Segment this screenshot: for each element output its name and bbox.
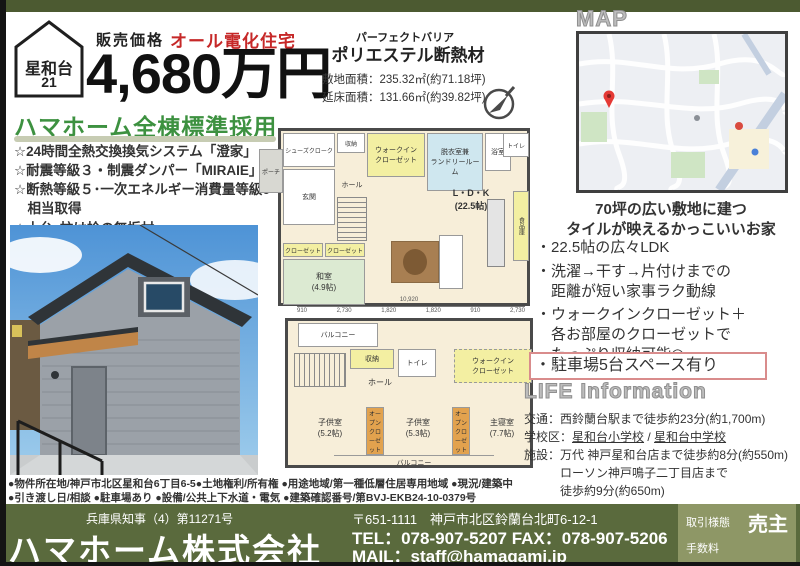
stairs-1f — [337, 197, 367, 241]
company-name: ハマホーム株式会社 — [8, 524, 322, 566]
school-elementary: 星和台小学校 — [572, 430, 644, 444]
life-facility-1: 施設：万代 神戸星和台店まで徒歩約8分(約550m) — [524, 446, 796, 464]
dim-segments: 910 2,730 1,820 1,820 910 2,730 — [297, 308, 525, 314]
dim-seg: 1,820 — [426, 308, 441, 314]
dim-seg: 910 — [297, 308, 307, 314]
footer-band: 兵庫県知事（4）第11271号 ハマホーム株式会社 〒651-1111 神戸市北… — [0, 504, 800, 562]
life-heading: LIFE Information — [524, 380, 707, 404]
dim-seg: 910 — [470, 308, 480, 314]
school-junior: 星和台中学校 — [654, 430, 726, 444]
life-facility-3: 徒歩約9分(約650m) — [524, 482, 796, 500]
highlight-text: ・駐車場5台スペース有り — [535, 355, 718, 376]
room-balcony-bottom: バルコニー — [334, 455, 494, 469]
room-open-closet2: オープン クローゼット — [452, 407, 470, 455]
map-image — [576, 31, 788, 193]
table — [403, 249, 427, 275]
insulation-name: ポリエステル断熱材 — [308, 41, 508, 66]
room-master: 主寝室 (7.7帖) — [472, 397, 532, 459]
floorplan-2f-outline: バルコニー 収納 トイレ ホール ウォークイン クローゼット 子供室 (5.2帖… — [285, 318, 533, 468]
life-schools: 学校区：星和台小学校 / 星和台中学校 — [524, 428, 796, 446]
room-hall-1f: ホール — [337, 175, 367, 195]
left-black-edge — [0, 0, 6, 566]
house-photo — [10, 225, 258, 475]
map-heading: MAP — [576, 6, 628, 32]
dim-total: 10,920 — [283, 297, 535, 303]
top-green-bar — [0, 0, 800, 12]
fineprint-line-1: ●物件所在地/神戸市北区星和台6丁目6-5●土地権利/所有権 ●用途地域/第一種… — [8, 477, 513, 491]
stairs-2f — [294, 353, 346, 387]
floorplan-1f: ポーチ シューズクローク 収納 ウォークイン クローゼット 脱衣室兼 ランドリー… — [278, 128, 530, 306]
kitchen-counter — [487, 199, 505, 267]
dim-seg: 2,730 — [337, 308, 352, 314]
room-closet-a: クローゼット — [283, 243, 323, 257]
dim-line-total — [297, 306, 525, 307]
flyer-page: 星和台 21 販売価格 オール電化住宅 4,680万円 パーフェクトバリア ポリ… — [0, 0, 800, 566]
property-caption: 70坪の広い敷地に建つ タイルが映えるかっこいいお家 — [545, 200, 797, 241]
room-closet-b: クローゼット — [325, 243, 365, 257]
room-porch: ポーチ — [259, 149, 283, 193]
room-kids1: 子供室 (5.2帖) — [296, 397, 364, 459]
standard-items: ☆24時間全熱交換換気システム「澄家」 ☆耐震等級３・制震ダンパー「MIRAIE… — [14, 142, 284, 238]
room-balcony-top: バルコニー — [298, 323, 378, 347]
room-wic: ウォークイン クローゼット — [367, 133, 425, 177]
estate-badge: 星和台 21 — [13, 19, 85, 99]
floorplan-2f: 10,920 910 2,730 1,820 1,820 910 2,730 バ… — [283, 296, 535, 476]
dim-seg: 1,820 — [381, 308, 396, 314]
floor-area: 延床面積：131.66㎡(約39.82坪) — [322, 90, 486, 108]
highlight-box: ・駐車場5台スペース有り — [529, 352, 767, 380]
sofa — [439, 235, 463, 289]
standard-item: ☆24時間全熱交換換気システム「澄家」 — [14, 142, 284, 161]
compass-icon — [480, 83, 520, 128]
deal-box: 取引様態 売主 手数料 — [678, 504, 796, 562]
room-toilet-1f: トイレ — [503, 133, 529, 157]
price-value: 4,680万円 — [86, 46, 331, 102]
deal-type-label: 取引様態 — [686, 514, 730, 530]
fee-label: 手数料 — [686, 540, 719, 556]
area-info: 敷地面積：235.32㎡(約71.18坪) 延床面積：131.66㎡(約39.8… — [322, 72, 486, 108]
fineprint: ●物件所在地/神戸市北区星和台6丁目6-5●土地権利/所有権 ●用途地域/第一種… — [8, 477, 513, 505]
standard-item: 相当取得 — [14, 199, 284, 218]
life-facility-2: ローソン神戸鳴子二丁目店まで — [524, 464, 796, 482]
dim-seg: 2,730 — [510, 308, 525, 314]
room-hall-2f: ホール — [350, 373, 410, 391]
site-area: 敷地面積：235.32㎡(約71.18坪) — [322, 72, 486, 90]
feature-bullet-1: ・22.5帖の広々LDK — [536, 238, 796, 258]
bottom-black-edge — [0, 562, 800, 566]
room-pantry: 食品庫 — [513, 191, 529, 261]
room-entrance: 玄関 — [283, 169, 335, 225]
standard-item: ☆断熱等級５･一次エネルギー消費量等級6 — [14, 180, 284, 199]
room-shoes-closet: シューズクローク — [283, 133, 335, 167]
life-transport: 交通：西鈴蘭台駅まで徒歩約23分(約1,700m) — [524, 410, 796, 428]
room-wic-2f: ウォークイン クローゼット — [454, 349, 532, 383]
room-open-closet1: オープン クローゼット — [366, 407, 384, 455]
room-kids2: 子供室 (5.3帖) — [386, 397, 450, 459]
deal-type-value: 売主 — [748, 508, 788, 537]
school-label: 学校区： — [524, 430, 572, 444]
life-info: 交通：西鈴蘭台駅まで徒歩約23分(約1,700m) 学校区：星和台小学校 / 星… — [524, 410, 796, 500]
room-storage: 収納 — [337, 133, 365, 153]
badge-number: 21 — [13, 74, 85, 90]
standard-item: ☆耐震等級３・制震ダンパー「MIRAIE」 — [14, 161, 284, 180]
room-storage-2f: 収納 — [350, 349, 394, 369]
feature-bullet-2: ・洗濯→干す→片付けまでの 距離が短い家事ラク動線 — [536, 262, 796, 302]
school-separator: / — [644, 430, 654, 444]
